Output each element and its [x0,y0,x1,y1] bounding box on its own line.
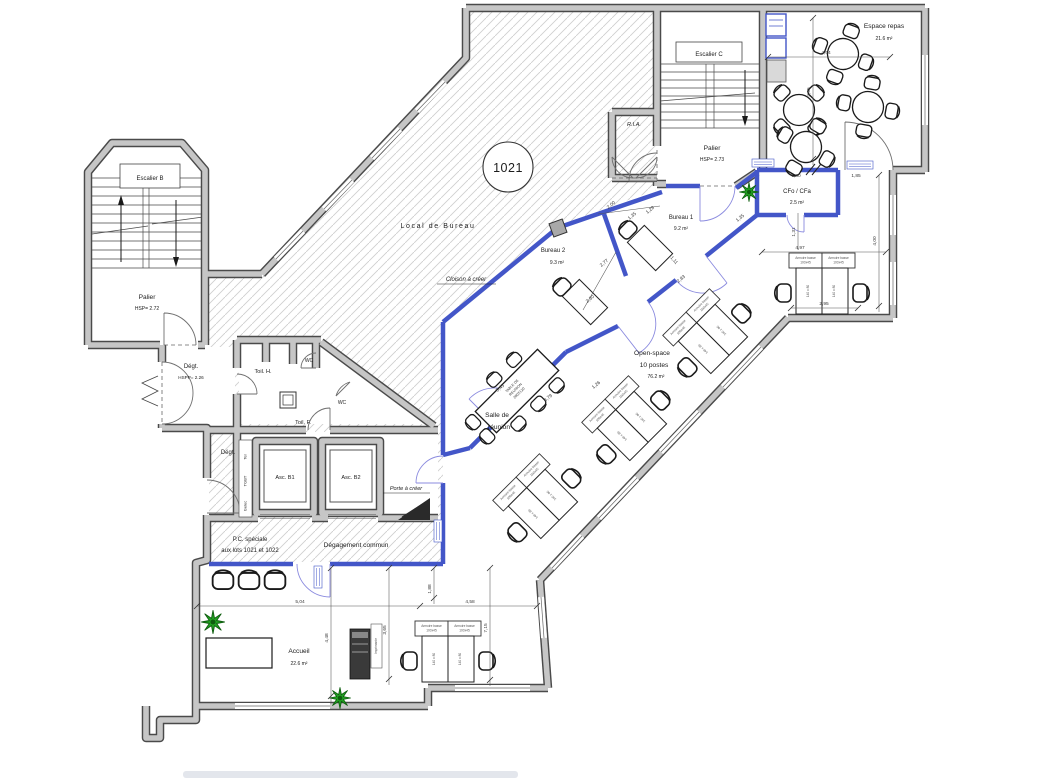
label-tgbt: TGBT [243,475,248,486]
label-espace-repas-area: 21.6 m² [876,36,893,42]
label-pc-1: P.C. spéciale [233,537,268,543]
dim-4-97: 4,97 [795,245,805,251]
dim-4-65: 4,65 [806,87,812,97]
dim-4-00: 4,00 [872,236,878,246]
note-cloison-a-creer: Cloison à créer [446,277,487,283]
scan-artifact [183,771,518,778]
dim-1-28: 1,28 [645,205,656,216]
label-escalier-c: Escalier C [695,52,723,58]
label-toil-f: Toil. F. [295,420,311,426]
label-cfo-cfa: CFo / CFa [783,189,811,195]
dim-2-95: 2,95 [819,301,829,307]
label-asc-b1: Asc. B1 [275,475,294,481]
label-open-space: Open-space [634,350,670,357]
label-local-bureau: Local de Bureau [401,223,476,230]
dim-1-35: 1,35 [627,211,638,222]
label-espace-repas: Espace repas [864,23,905,30]
label-open-space-postes: 10 postes [640,362,669,369]
dim-5-04: 5,04 [295,599,305,605]
printer-label: Imprimante [374,638,378,654]
label-toil-h: Toil. H. [254,369,272,375]
label-degt-entree-hsp: HSPP= 2.26 [178,375,204,380]
dim-4-64: 4,64 [821,50,831,56]
label-salle-reunion-2: réunion [488,424,510,431]
sink [280,392,296,408]
dim-1-80: 1,80 [791,173,801,179]
label-pc-2: aux lots 1021 et 1022 [221,548,279,554]
technical-strip: Tel TGBT Gelec [239,440,252,517]
dim-7-15: 7,15 [483,623,489,633]
label-degt-2: Dégt. [221,450,236,456]
label-wc-1: WC [305,358,314,364]
label-degt-entree: Dégt. [184,364,199,370]
label-palier-b-hsp: HSP= 2.72 [135,306,160,312]
label-tel: Tel [243,454,248,459]
label-wc-2: WC [338,400,347,406]
reception-desk [206,638,272,668]
note-porte-a-creer: Porte à créer [390,486,423,492]
label-gelec: Gelec [243,501,248,511]
label-degagement-commun: Dégagement commun [324,542,389,549]
dim-2-83: 2,83 [676,274,687,285]
dim-1-85: 1,85 [851,173,861,179]
label-cfo-cfa-area: 2.5 m² [790,200,805,206]
label-palier-c-hsp: HSP= 2.73 [700,157,725,163]
dim-4-58: 4,58 [465,599,475,605]
label-palier-b: Palier [139,294,157,301]
dim-1-11: 1,11 [669,255,680,266]
label-escalier-b: Escalier B [136,176,163,182]
label-salle-reunion-1: Salle de [485,412,509,419]
dim-1-88: 1,88 [427,584,433,594]
label-bureau-1-area: 9.2 m² [674,226,689,232]
floor-plan-page: Armoire basse 100x45 Armoire basse 100x4… [0,0,1038,779]
label-accueil: Accueil [288,648,310,655]
label-bureau-1: Bureau 1 [669,215,694,221]
label-bureau-2-area: 9.3 m² [550,260,565,266]
label-ria: R.I.A. [627,122,641,128]
dim-3-65: 3,65 [382,625,388,635]
floor-plan-drawing: Armoire basse 100x45 Armoire basse 100x4… [0,0,1038,779]
printer: Imprimante [350,624,382,679]
label-palier-c: Palier [704,145,722,152]
dim-1-35b: 1,35 [735,213,746,224]
lot-badge: 1021 [483,142,533,192]
label-asc-b2: Asc. B2 [341,475,360,481]
lot-number: 1021 [493,161,523,175]
label-open-space-area: 76.2 m² [648,374,665,380]
dim-3-79: 3,79 [543,393,554,404]
dim-1-26: 1,26 [591,380,602,391]
label-bureau-2: Bureau 2 [541,248,566,254]
dim-1-31: 1,31 [791,227,797,237]
label-accueil-area: 22.6 m² [291,661,308,667]
dim-4-48: 4,48 [324,633,330,643]
dim-2-77: 2,77 [599,258,610,269]
